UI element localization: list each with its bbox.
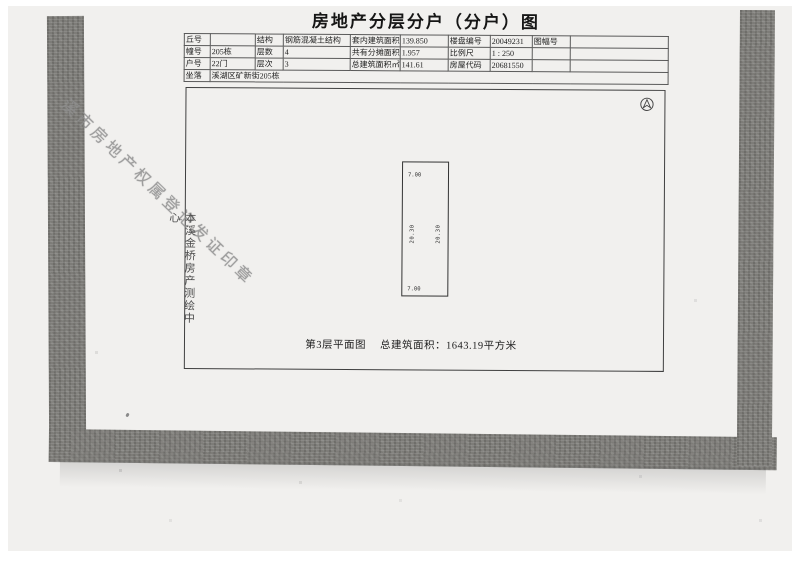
table-cell: 1.957 xyxy=(400,47,448,59)
floor-plan-area: 7.00 20.30 20.30 7.00 第3层平面图总建筑面积：1643.1… xyxy=(184,87,666,372)
table-cell xyxy=(210,34,255,46)
table-cell: 钢筋混凝土结构 xyxy=(283,34,350,46)
table-cell: 结构 xyxy=(255,34,283,46)
unit-outline: 7.00 20.30 20.30 7.00 xyxy=(401,161,449,296)
table-cell: 20681550 xyxy=(490,59,532,71)
table-cell: 比例尺 xyxy=(448,47,490,59)
table-cell: 4 xyxy=(283,46,350,58)
table-cell: 幢号 xyxy=(184,46,210,58)
scan-noise xyxy=(0,0,1,1)
table-cell: 套内建筑面积㎡ xyxy=(350,35,400,47)
table-cell: 图幅号 xyxy=(532,36,570,48)
table-cell xyxy=(570,60,668,73)
page-title: 房地产分层分户（分户）图 xyxy=(184,12,668,35)
dimension-top: 7.00 xyxy=(408,172,421,178)
table-cell: 层数 xyxy=(255,46,283,58)
surveyor-watermark: 本溪金桥房产测绘中心 xyxy=(164,212,198,336)
table-cell: 1 : 250 xyxy=(490,47,532,59)
table-cell: 层次 xyxy=(255,58,283,70)
north-arrow-icon xyxy=(639,97,654,112)
table-cell xyxy=(532,48,570,60)
table-cell: 205栋 xyxy=(210,46,255,58)
table-cell: 总建筑面积㎡ xyxy=(350,59,400,71)
document: 房地产分层分户（分户）图 丘号 结构 钢筋混凝土结构 套内建筑面积㎡ 139.8… xyxy=(182,12,668,372)
table-cell: 139.850 xyxy=(400,35,448,47)
table-cell: 共有分摊面积㎡ xyxy=(350,47,400,59)
floor-label: 第3层平面图 xyxy=(305,340,366,351)
table-cell: 141.61 xyxy=(400,59,448,71)
table-cell: 楼盘编号 xyxy=(448,35,490,47)
plan-caption: 第3层平面图总建筑面积：1643.19平方米 xyxy=(185,336,663,354)
table-cell: 3 xyxy=(283,58,350,70)
table-cell: 户号 xyxy=(184,58,210,70)
location-label: 坐落 xyxy=(184,70,210,82)
table-cell: 20049231 xyxy=(490,35,532,47)
table-row-location: 坐落 溪湖区矿新街205栋 xyxy=(184,70,668,85)
table-cell xyxy=(570,48,668,61)
scan-edge-band-right xyxy=(737,10,775,466)
table-cell: 房屋代码 xyxy=(448,59,490,71)
total-area-label: 总建筑面积：1643.19平方米 xyxy=(380,340,517,352)
location-value: 溪湖区矿新街205栋 xyxy=(210,70,668,85)
table-cell xyxy=(532,60,570,72)
dimension-bottom: 7.00 xyxy=(407,286,420,292)
table-cell: 22门 xyxy=(210,58,255,70)
dimension-right: 20.30 xyxy=(436,225,442,244)
property-info-table: 丘号 结构 钢筋混凝土结构 套内建筑面积㎡ 139.850 楼盘编号 20049… xyxy=(184,33,669,85)
table-cell: 丘号 xyxy=(184,34,210,46)
scan-edge-band-left xyxy=(47,16,86,434)
table-cell xyxy=(570,36,668,49)
dimension-left: 20.30 xyxy=(410,224,416,243)
